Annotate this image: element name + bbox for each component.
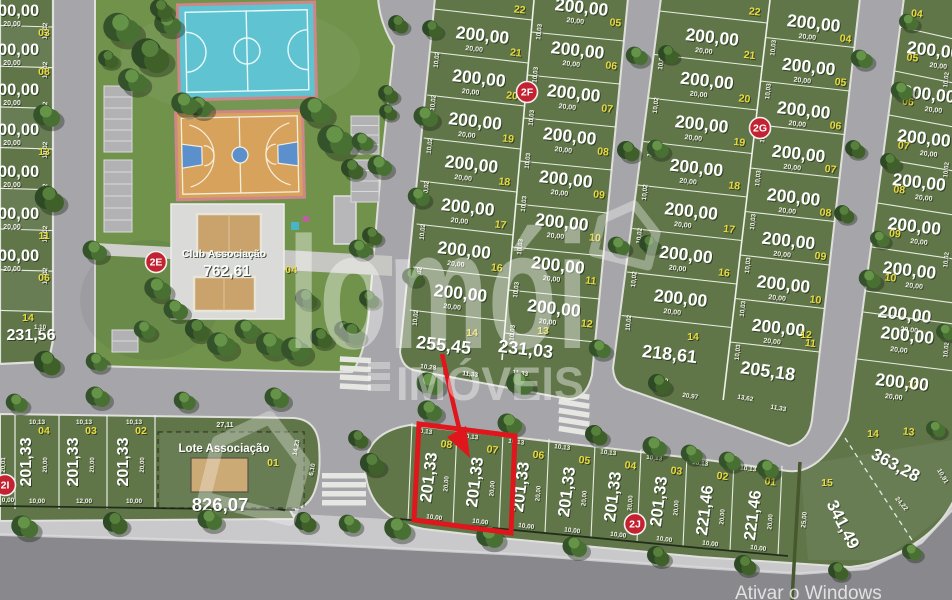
svg-text:200,00: 200,00: [0, 81, 39, 99]
svg-text:16: 16: [718, 266, 731, 279]
svg-text:Club Associação: Club Associação: [182, 248, 266, 260]
svg-text:762,61: 762,61: [203, 263, 251, 280]
svg-text:11: 11: [38, 230, 49, 242]
svg-text:13: 13: [38, 146, 50, 158]
svg-text:10: 10: [809, 293, 822, 306]
svg-text:08: 08: [597, 145, 610, 158]
svg-text:20,00: 20,00: [534, 485, 542, 502]
svg-text:20,00: 20,00: [3, 224, 21, 231]
svg-text:200,00: 200,00: [0, 163, 39, 181]
svg-text:03: 03: [670, 465, 683, 478]
svg-text:21: 21: [743, 49, 756, 62]
svg-text:07: 07: [486, 443, 499, 456]
svg-text:22: 22: [748, 5, 761, 18]
svg-text:08: 08: [819, 206, 832, 219]
svg-text:06: 06: [829, 119, 842, 132]
svg-text:06: 06: [605, 59, 618, 72]
svg-text:231,56: 231,56: [7, 327, 56, 344]
svg-text:08: 08: [893, 183, 906, 196]
svg-text:18: 18: [728, 179, 741, 192]
svg-text:200,00: 200,00: [0, 121, 39, 139]
svg-text:IMÓVEIS: IMÓVEIS: [396, 357, 584, 410]
svg-text:20,00: 20,00: [42, 457, 50, 473]
svg-text:09: 09: [593, 188, 606, 201]
svg-text:20,00: 20,00: [89, 457, 97, 473]
svg-text:10: 10: [884, 271, 897, 284]
svg-text:12: 12: [800, 329, 812, 341]
svg-text:201,33: 201,33: [18, 437, 35, 486]
svg-text:20,01: 20,01: [0, 457, 7, 473]
svg-text:1,10: 1,10: [34, 324, 47, 331]
svg-text:07: 07: [897, 139, 910, 152]
svg-text:20,00: 20,00: [3, 60, 21, 67]
svg-text:Iomói: Iomói: [288, 196, 588, 384]
svg-text:20,00: 20,00: [3, 140, 21, 147]
svg-text:20,00: 20,00: [672, 499, 680, 516]
svg-text:08: 08: [38, 66, 50, 78]
svg-text:20,00: 20,00: [766, 513, 774, 530]
svg-text:22: 22: [513, 3, 526, 16]
svg-text:04: 04: [839, 32, 852, 45]
svg-text:20,00: 20,00: [442, 475, 450, 492]
svg-text:05: 05: [906, 51, 919, 64]
svg-text:04: 04: [38, 425, 50, 437]
svg-text:0,00: 0,00: [2, 497, 15, 504]
svg-text:06: 06: [38, 272, 50, 284]
svg-text:20,00: 20,00: [3, 266, 21, 273]
svg-text:20,00: 20,00: [626, 495, 634, 512]
svg-text:03: 03: [38, 27, 50, 39]
svg-text:200,00: 200,00: [0, 2, 39, 20]
svg-text:07: 07: [601, 102, 614, 115]
svg-text:13: 13: [902, 425, 915, 438]
svg-text:2G: 2G: [753, 122, 767, 134]
svg-text:2F: 2F: [521, 86, 534, 98]
svg-text:200,00: 200,00: [0, 41, 39, 59]
svg-text:07: 07: [824, 163, 837, 176]
svg-text:12,00: 12,00: [76, 498, 92, 505]
svg-text:Ativar o Windows: Ativar o Windows: [735, 583, 882, 600]
svg-text:27,11: 27,11: [216, 422, 233, 429]
svg-text:19: 19: [502, 132, 515, 145]
svg-text:04: 04: [624, 459, 637, 472]
svg-text:2E: 2E: [150, 256, 163, 268]
svg-text:20,00: 20,00: [139, 457, 147, 473]
svg-text:200,00: 200,00: [0, 247, 39, 265]
svg-text:200,00: 200,00: [0, 205, 39, 223]
svg-text:20,00: 20,00: [3, 182, 21, 189]
svg-text:14: 14: [687, 331, 699, 343]
svg-text:20,00: 20,00: [580, 490, 588, 507]
svg-text:2J: 2J: [629, 518, 641, 530]
svg-text:21: 21: [509, 46, 522, 59]
svg-text:02: 02: [135, 425, 147, 437]
svg-text:20,00: 20,00: [488, 480, 496, 497]
svg-text:20,00: 20,00: [3, 100, 21, 107]
svg-text:201,33: 201,33: [115, 437, 132, 486]
svg-text:03: 03: [85, 425, 97, 437]
svg-text:14: 14: [22, 312, 34, 324]
svg-text:06: 06: [532, 449, 545, 462]
svg-text:05: 05: [834, 76, 847, 89]
svg-text:17: 17: [723, 223, 736, 236]
svg-text:09: 09: [814, 250, 827, 263]
svg-text:14: 14: [867, 428, 879, 440]
svg-text:2I: 2I: [1, 479, 10, 491]
svg-text:05: 05: [609, 16, 622, 29]
svg-text:201,33: 201,33: [65, 437, 82, 486]
svg-text:20,00: 20,00: [718, 508, 726, 525]
svg-text:20: 20: [738, 92, 751, 105]
svg-text:10,00: 10,00: [126, 498, 142, 505]
svg-text:10,00: 10,00: [29, 498, 45, 505]
svg-text:18: 18: [498, 175, 511, 188]
svg-text:20,00: 20,00: [3, 21, 21, 28]
svg-text:19: 19: [733, 136, 746, 149]
svg-text:05: 05: [578, 454, 591, 467]
